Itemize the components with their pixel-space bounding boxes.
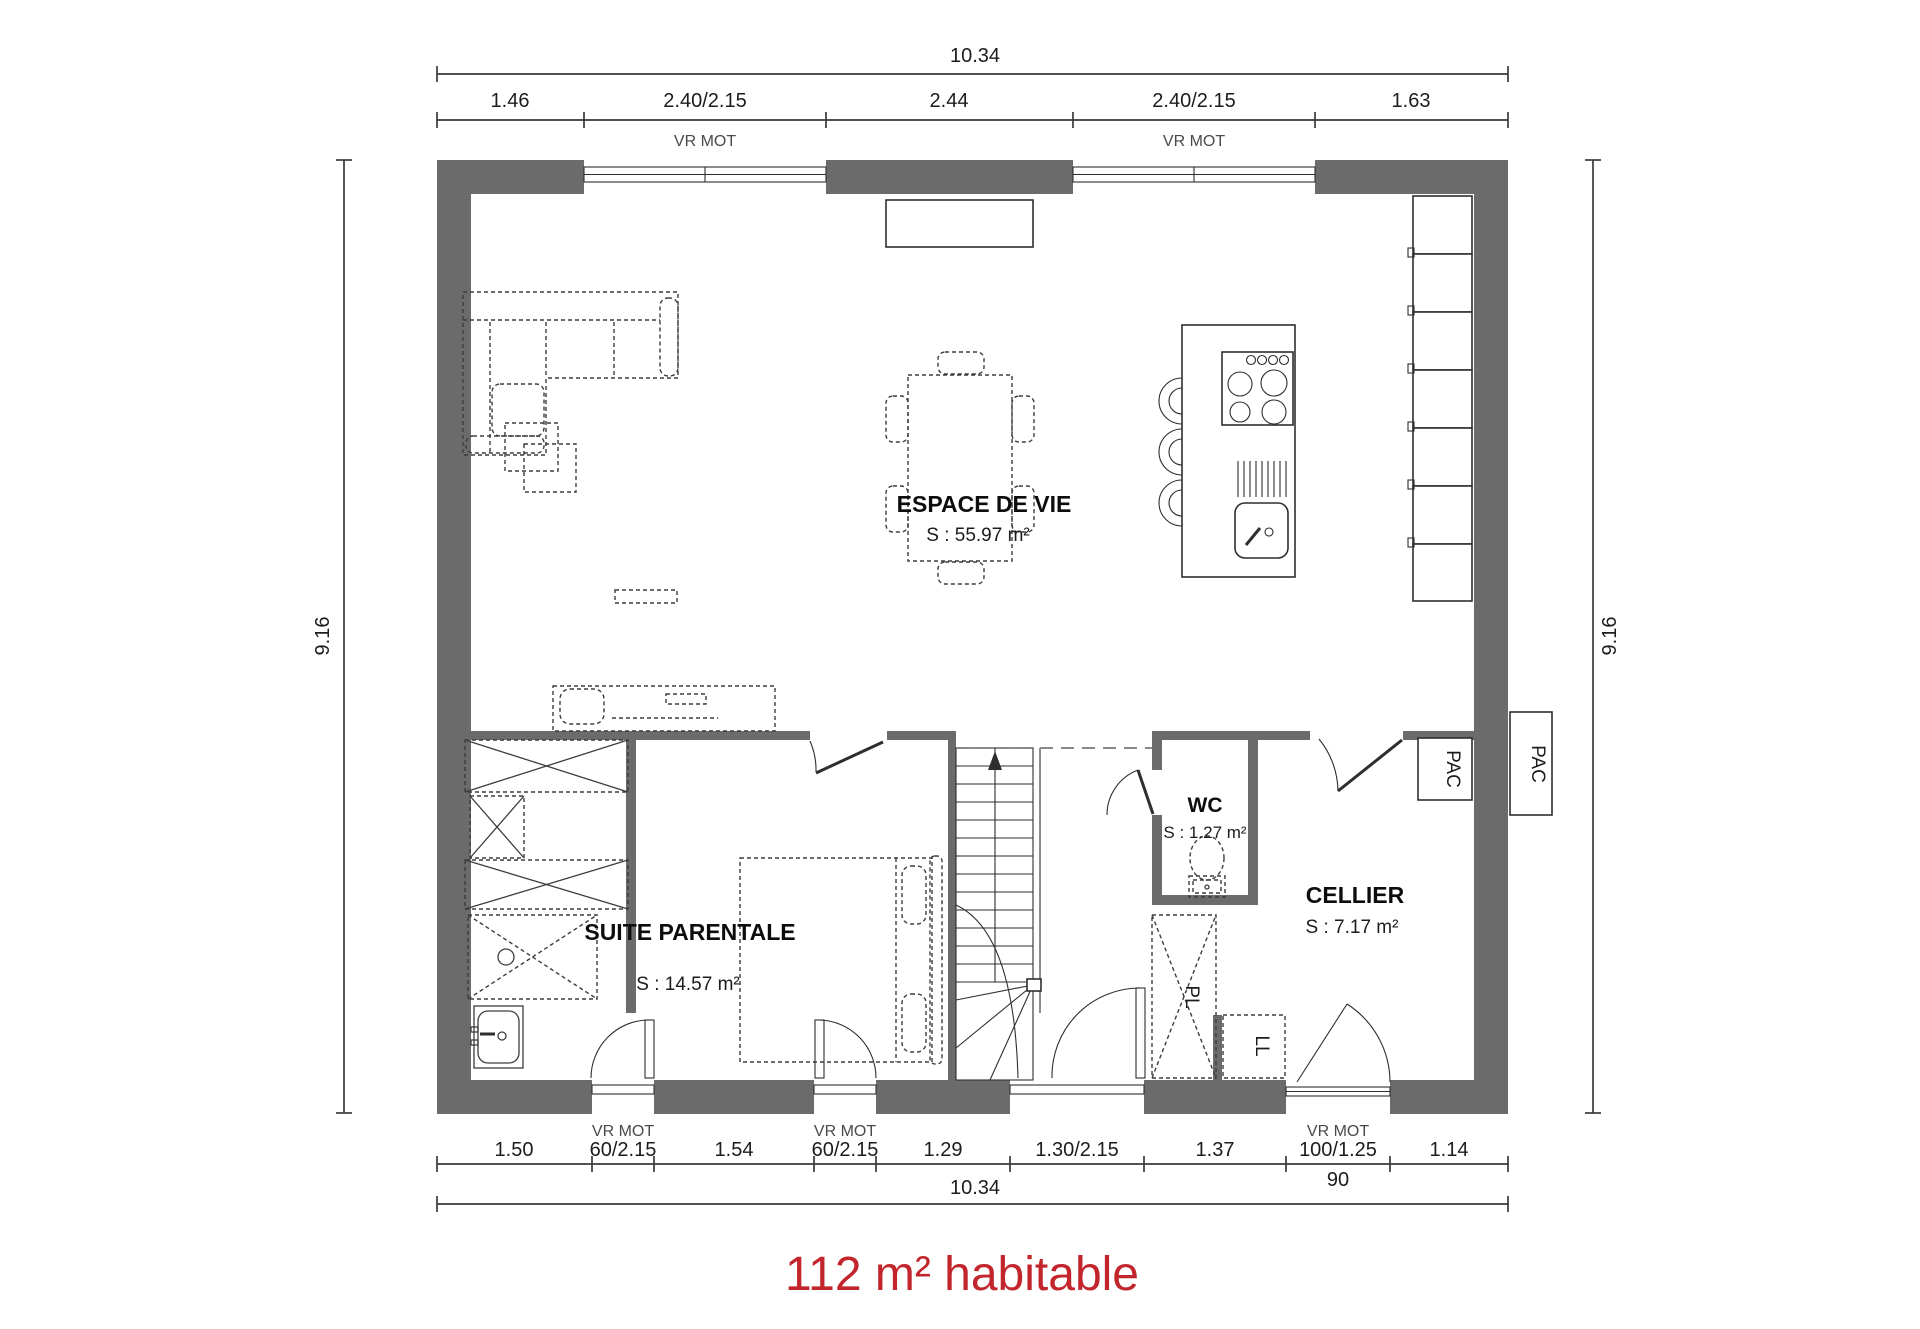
dim-bottom-seg-7: 1.37 [1196,1139,1235,1161]
dimension-left: 9.16 [312,160,352,1113]
dim-bottom-seg-8: 100/1.25 [1299,1139,1377,1161]
dressing-closets [465,740,628,909]
room-master-area: S : 14.57 m² [636,974,740,995]
kitchen-island [1159,325,1295,577]
cooktop-icon [1222,352,1293,425]
bar-stools [1159,378,1182,526]
dim-bottom-note-90: 90 [1327,1169,1349,1191]
dim-bottom-seg-6: 1.30/2.15 [1035,1139,1118,1161]
room-living-name: ESPACE DE VIE [897,491,1072,517]
room-master-name: SUITE PARENTALE [584,919,795,945]
room-wc-name: WC [1188,794,1223,817]
dim-top-seg-4: 2.40/2.15 [1152,90,1235,112]
label-pl: PL [1181,985,1202,1008]
shutter-label-bottom-1: VR MOT [592,1123,654,1140]
dim-top-seg-1: 1.46 [491,90,530,112]
desk [553,686,775,731]
shutter-label-top-2: VR MOT [1163,133,1225,150]
dim-top-total: 10.34 [950,45,1000,67]
dim-bottom-total: 10.34 [950,1177,1000,1199]
dim-bottom-seg-5: 1.29 [924,1139,963,1161]
dim-bottom-seg-4: 60/2.15 [812,1139,879,1161]
door-master-interior [810,741,883,773]
door-entry [1010,988,1145,1094]
door-wc [1107,770,1153,815]
stairs-up-arrow [988,751,1002,770]
drainboard-icon [1238,461,1286,497]
dim-right-total: 9.16 [1599,617,1621,656]
dim-bottom-seg-1: 1.50 [495,1139,534,1161]
shower [468,915,597,999]
room-cellar-area: S : 7.17 m² [1306,917,1399,938]
dining-table [886,352,1034,584]
room-wc-area: S : 1.27 m² [1163,823,1246,842]
kitchen-tall-units [1408,196,1472,601]
sideboard [886,200,1033,247]
bed [740,856,942,1064]
staircase [956,748,1152,1080]
shutter-label-bottom-3: VR MOT [1307,1123,1369,1140]
dim-top-seg-3: 2.44 [930,90,969,112]
dim-bottom-seg-3: 1.54 [715,1139,754,1161]
floor-plan-page: ESPACE DE VIE S : 55.97 m² SUITE PARENTA… [0,0,1920,1329]
room-cellar-name: CELLIER [1306,882,1405,908]
dimension-top: 10.34 1.46 2.40/2.15 2.44 2.40/2.15 1.63… [437,45,1508,150]
dim-top-seg-2: 2.40/2.15 [663,90,746,112]
label-ll: LL [1251,1035,1272,1056]
shutter-label-top-1: VR MOT [674,133,736,150]
room-living-area: S : 55.97 m² [926,525,1030,546]
washbasin [471,1006,523,1068]
floor-plan-drawing: ESPACE DE VIE S : 55.97 m² SUITE PARENTA… [0,0,1920,1329]
shutter-label-bottom-2: VR MOT [814,1123,876,1140]
dim-left-total: 9.16 [312,617,334,656]
corner-sofa [463,292,678,455]
habitable-area-label: 112 m² habitable [785,1248,1139,1301]
poufs [505,423,576,492]
tv-bench [615,590,677,603]
sink-icon [1235,503,1288,558]
label-pac-outer: PAC [1527,745,1548,783]
dimension-right: 9.16 [1585,160,1621,1113]
door-cellar [1319,739,1402,791]
dim-top-seg-5: 1.63 [1392,90,1431,112]
dimension-bottom: VR MOT VR MOT VR MOT 1.50 60/2.15 1.54 6… [437,1123,1508,1212]
label-pac-inner: PAC [1442,750,1463,788]
dim-bottom-seg-9: 1.14 [1430,1139,1469,1161]
dim-bottom-seg-2: 60/2.15 [590,1139,657,1161]
toilet-icon [1189,836,1225,897]
